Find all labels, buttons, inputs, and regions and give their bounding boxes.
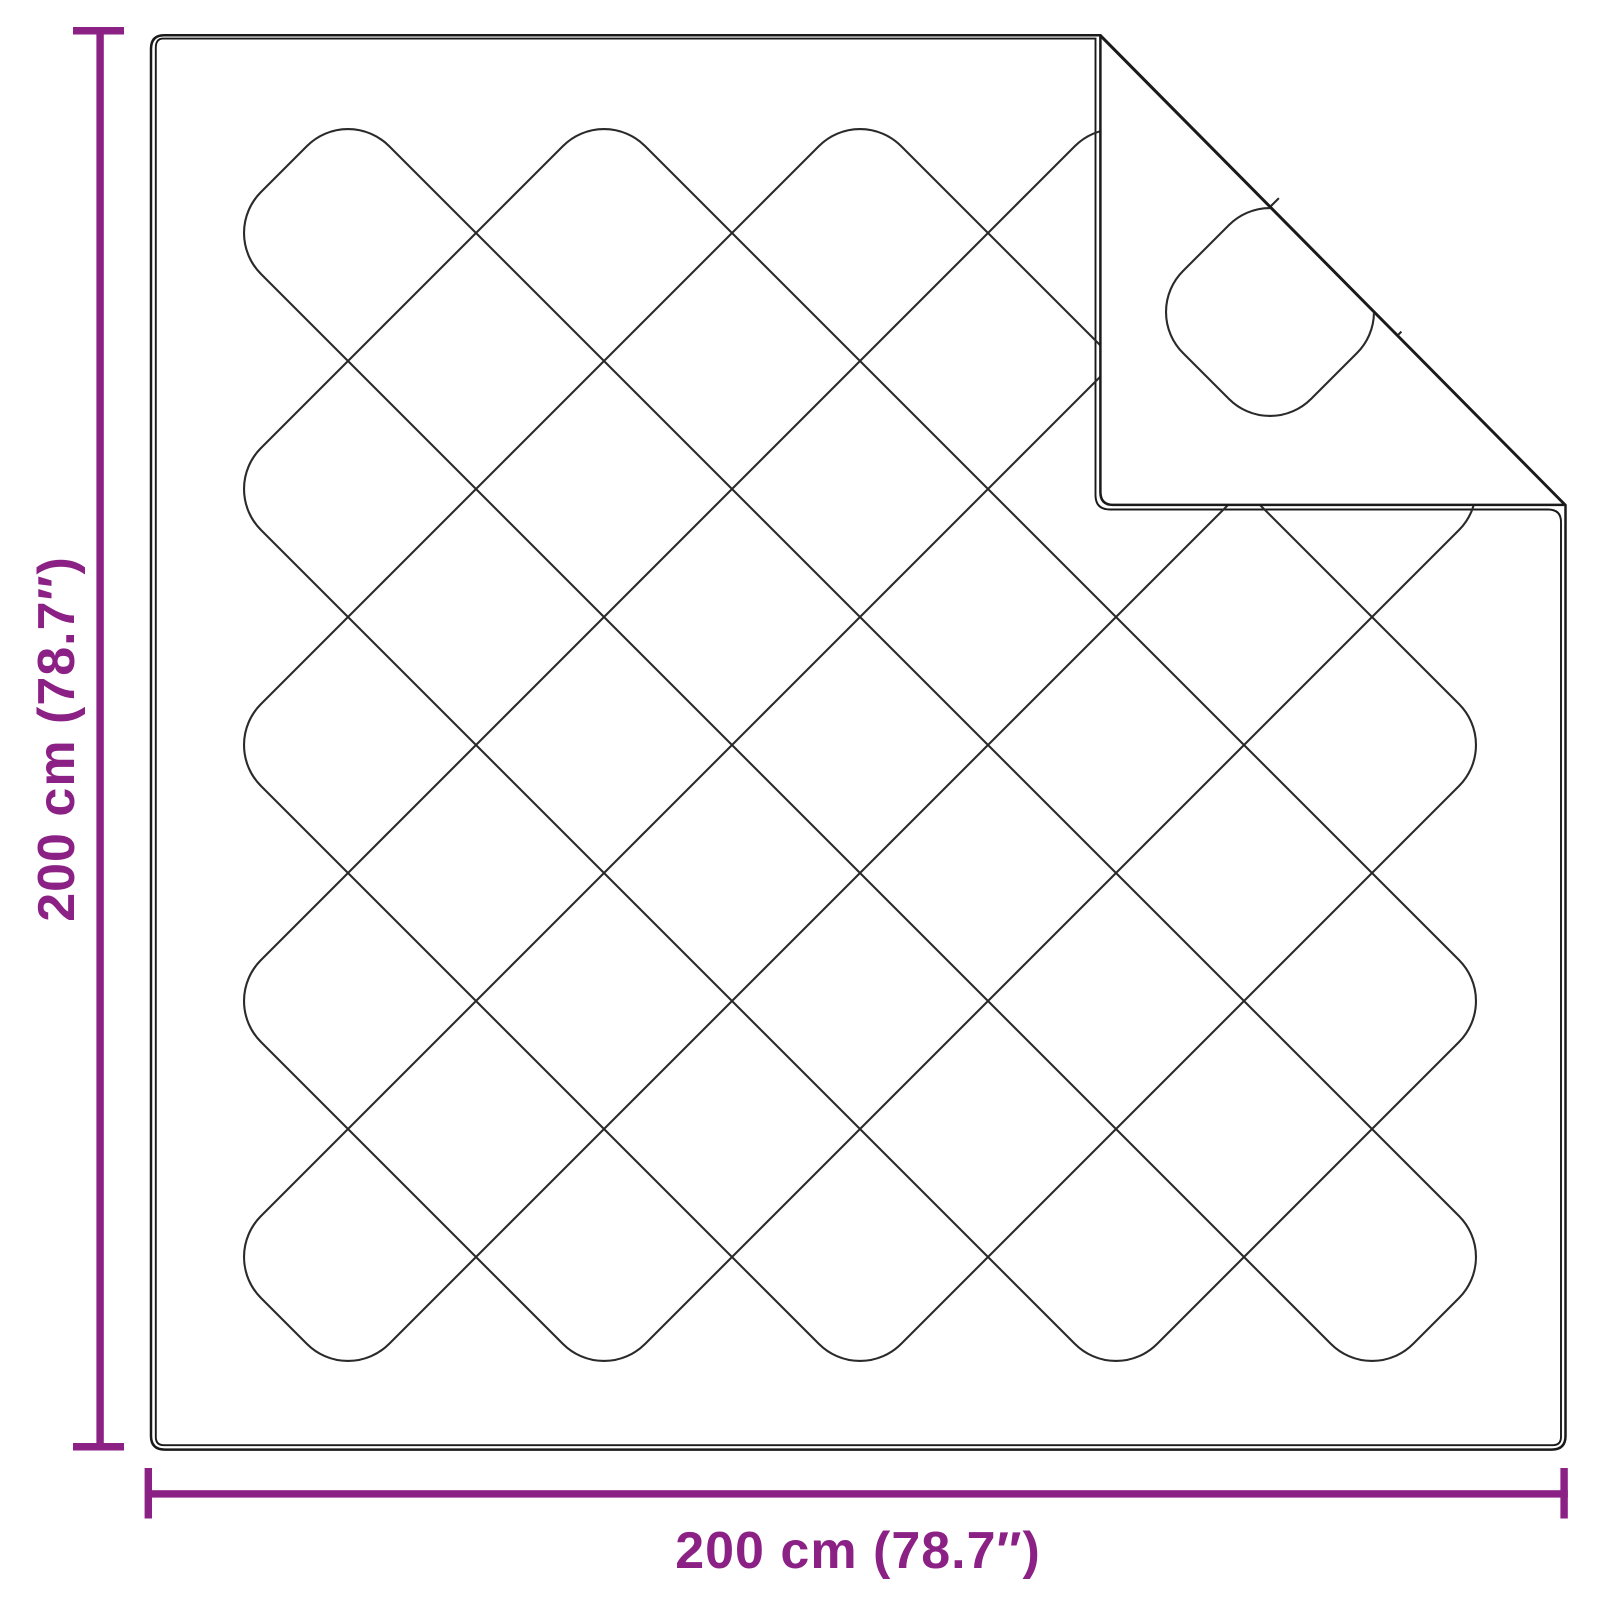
height-dimension-top-cap (73, 27, 124, 35)
height-label: 200 cm (78.7″) (28, 556, 86, 922)
duvet-dimension-diagram: 200 cm (78.7″) 200 cm (78.7″) (0, 0, 1600, 1600)
height-dimension-line (96, 27, 103, 1451)
width-label: 200 cm (78.7″) (675, 1522, 1041, 1580)
height-dimension-bottom-cap (73, 1443, 124, 1451)
width-dimension-line (148, 1490, 1568, 1497)
width-dimension-left-cap (145, 1468, 152, 1519)
width-dimension-right-cap (1560, 1468, 1567, 1519)
diagram-canvas: 200 cm (78.7″) 200 cm (78.7″) (0, 0, 1600, 1600)
